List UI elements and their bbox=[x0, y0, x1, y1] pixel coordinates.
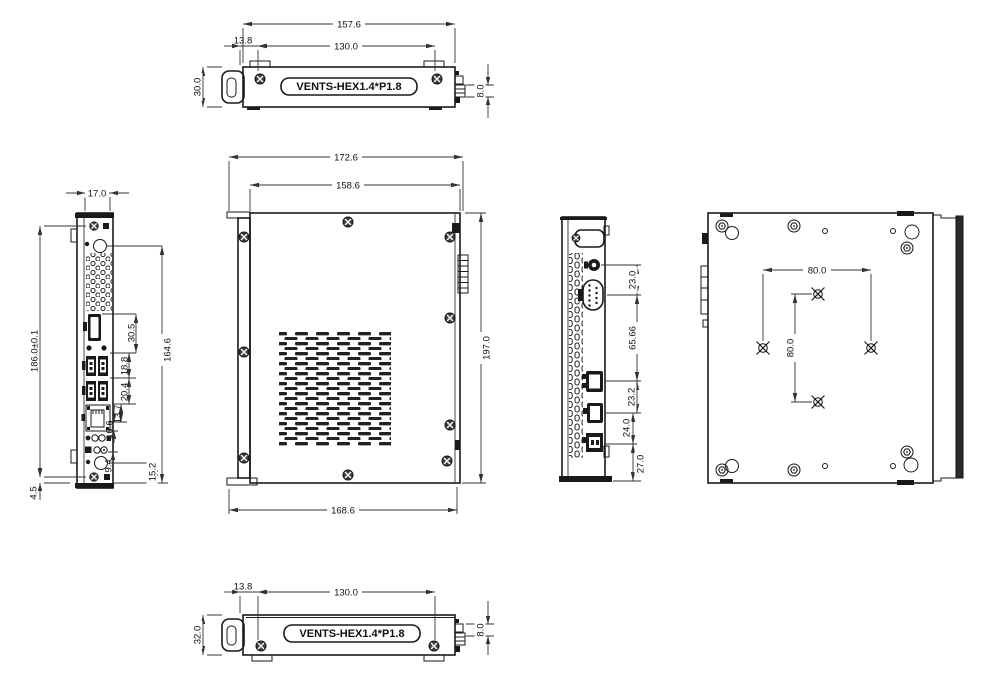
screw-icon bbox=[239, 453, 249, 463]
back-chassis-outline bbox=[708, 213, 933, 483]
dim-top-screw-spacing: 130.0 bbox=[334, 42, 358, 53]
ground-icon bbox=[104, 474, 110, 480]
mounting-hole bbox=[904, 458, 918, 472]
mounting-ear bbox=[222, 619, 244, 651]
mounting-hole bbox=[905, 225, 919, 239]
led-indicator bbox=[86, 460, 90, 464]
screw-icon bbox=[343, 217, 353, 227]
dim-top-depth: 30.0 bbox=[193, 78, 204, 97]
edge-tab bbox=[897, 480, 914, 485]
mounting-hole bbox=[726, 227, 739, 240]
dim-left-overall-height: 186.0±0.1 bbox=[30, 330, 41, 372]
side-tab bbox=[71, 229, 77, 242]
dp-port[interactable] bbox=[83, 314, 101, 341]
side-connector-edge bbox=[455, 71, 465, 103]
pilot-hole bbox=[823, 464, 828, 469]
side-tab bbox=[71, 450, 77, 463]
dim-right-usb-bottom-offset: 27.0 bbox=[636, 455, 647, 474]
dim-left-power-offset: 15.2 bbox=[148, 463, 159, 482]
bracket-rail bbox=[956, 216, 963, 478]
screw-icon bbox=[343, 470, 353, 480]
dim-front-overall-height: 197.0 bbox=[482, 336, 493, 360]
vents-label: VENTS-HEX1.4*P1.8 bbox=[296, 81, 401, 93]
screw-icon bbox=[445, 313, 455, 323]
vesa-screw-icon bbox=[865, 342, 878, 355]
usb-ports-lower[interactable] bbox=[82, 381, 108, 401]
vesa-screw-icon bbox=[812, 288, 825, 301]
screw-icon bbox=[239, 232, 249, 242]
pilot-hole bbox=[891, 464, 896, 469]
mounting-slot bbox=[227, 626, 236, 645]
edge-tab bbox=[720, 479, 733, 483]
dim-left-bottom-offset: 4.5 bbox=[29, 486, 40, 499]
top-view: VENTS-HEX1.4*P1.8 157.6 13.8 130.0 30.0 … bbox=[192, 19, 495, 119]
edge-tab bbox=[897, 211, 914, 216]
front-view: 172.6 158.6 197.0 168.6 bbox=[227, 152, 493, 517]
io-leds bbox=[85, 447, 107, 454]
dim-left-led-pitch: 9.4 bbox=[104, 459, 115, 472]
mounting-ear bbox=[222, 71, 244, 103]
antenna-hole bbox=[101, 345, 106, 350]
hdmi-port[interactable] bbox=[582, 371, 603, 392]
dim-right-hdmi-dp-pitch: 23.2 bbox=[627, 388, 638, 407]
dim-top-connector-height: 8.0 bbox=[476, 84, 487, 97]
dc-jack[interactable] bbox=[584, 259, 600, 271]
usb-ports-upper[interactable] bbox=[82, 356, 108, 376]
dim-front-overall-width: 172.6 bbox=[334, 153, 358, 164]
dim-top-screw-offset: 13.8 bbox=[234, 36, 253, 47]
screw-icon bbox=[90, 473, 99, 482]
hex-screw-icon bbox=[788, 464, 800, 476]
side-ports-profile bbox=[701, 266, 708, 327]
dim-left-io-span: 164.6 bbox=[163, 338, 174, 362]
screw-icon bbox=[572, 234, 580, 242]
bracket-top-tab bbox=[227, 212, 250, 218]
dim-bottom-screw-spacing: 130.0 bbox=[334, 588, 358, 599]
edge-tab bbox=[452, 223, 460, 233]
dim-back-vesa-horizontal: 80.0 bbox=[808, 266, 827, 277]
dim-bottom-connector-height: 8.0 bbox=[476, 623, 487, 636]
screw-icon bbox=[239, 347, 249, 357]
mounting-tabs bbox=[250, 61, 444, 67]
hex-screw-icon bbox=[716, 464, 728, 476]
vents-label: VENTS-HEX1.4*P1.8 bbox=[299, 628, 404, 640]
dim-left-thickness: 17.0 bbox=[88, 189, 107, 200]
dim-right-com-hdmi-span: 65.66 bbox=[628, 326, 639, 350]
edge-tab bbox=[702, 233, 708, 244]
dim-back-vesa-vertical: 80.0 bbox=[786, 339, 797, 358]
usb-port[interactable] bbox=[582, 433, 603, 452]
audio-jacks[interactable] bbox=[86, 435, 111, 441]
right-side-view: 23.0 65.66 23.2 24.0 27.0 bbox=[559, 217, 647, 482]
hex-screw-icon bbox=[901, 242, 913, 254]
screw-icon bbox=[442, 456, 452, 466]
screw-icon bbox=[256, 641, 266, 651]
dim-bottom-depth: 32.0 bbox=[193, 626, 204, 645]
dimension-drawing-canvas: VENTS-HEX1.4*P1.8 157.6 13.8 130.0 30.0 … bbox=[0, 0, 984, 689]
edge-tab bbox=[455, 440, 460, 450]
mounting-tabs bbox=[252, 655, 444, 661]
mechanical-drawing: VENTS-HEX1.4*P1.8 157.6 13.8 130.0 30.0 … bbox=[0, 0, 984, 689]
ground-icon bbox=[103, 223, 109, 229]
screw-icon bbox=[90, 222, 99, 231]
dp-port[interactable] bbox=[583, 403, 603, 423]
dim-right-dp-usb-pitch: 24.0 bbox=[622, 419, 633, 438]
dim-front-body-width: 158.6 bbox=[336, 181, 360, 192]
mounting-hole bbox=[726, 460, 739, 473]
screw-icon bbox=[445, 232, 455, 242]
bracket-bottom-tab bbox=[227, 478, 257, 485]
left-side-view: 17.0 186.0±0.1 4.5 164.6 30.5 18.8 20.4 … bbox=[29, 188, 174, 500]
dim-front-base-width: 168.6 bbox=[331, 506, 355, 517]
screw-icon bbox=[432, 74, 442, 84]
back-view: 80.0 80.0 bbox=[701, 211, 963, 485]
dim-right-dc-jack-offset: 23.0 bbox=[628, 271, 639, 290]
dim-top-overall-width: 157.6 bbox=[337, 20, 361, 31]
hex-screw-icon bbox=[788, 220, 800, 232]
power-button[interactable] bbox=[94, 240, 107, 253]
pilot-hole bbox=[823, 229, 828, 234]
vent-slots bbox=[569, 253, 583, 458]
screw-icon bbox=[429, 641, 439, 651]
side-connector-edge bbox=[455, 619, 465, 652]
dim-left-usb-lan-pitch: 20.4 bbox=[120, 383, 131, 402]
vent-grille bbox=[279, 332, 391, 447]
foot bbox=[429, 107, 442, 110]
dim-left-usb-pitch: 18.8 bbox=[120, 357, 131, 376]
vent-holes bbox=[86, 253, 112, 311]
mounting-slot bbox=[227, 78, 236, 97]
edge-tab bbox=[720, 213, 733, 217]
screw-icon bbox=[255, 74, 265, 84]
screw-icon bbox=[445, 420, 455, 430]
bottom-view: VENTS-HEX1.4*P1.8 13.8 130.0 32.0 8.0 bbox=[192, 582, 495, 662]
foot bbox=[247, 107, 260, 110]
dim-bottom-screw-offset: 13.8 bbox=[234, 582, 253, 593]
dim-left-dp-offset: 30.5 bbox=[127, 324, 138, 343]
vesa-screw-icon bbox=[812, 396, 825, 409]
dim-left-audio-pitch: 6.6 bbox=[105, 420, 116, 433]
antenna-hole bbox=[86, 345, 91, 350]
vesa-screw-icon bbox=[757, 342, 770, 355]
led-indicator bbox=[85, 242, 89, 246]
pilot-hole bbox=[891, 229, 896, 234]
hex-screw-icon bbox=[901, 446, 913, 458]
